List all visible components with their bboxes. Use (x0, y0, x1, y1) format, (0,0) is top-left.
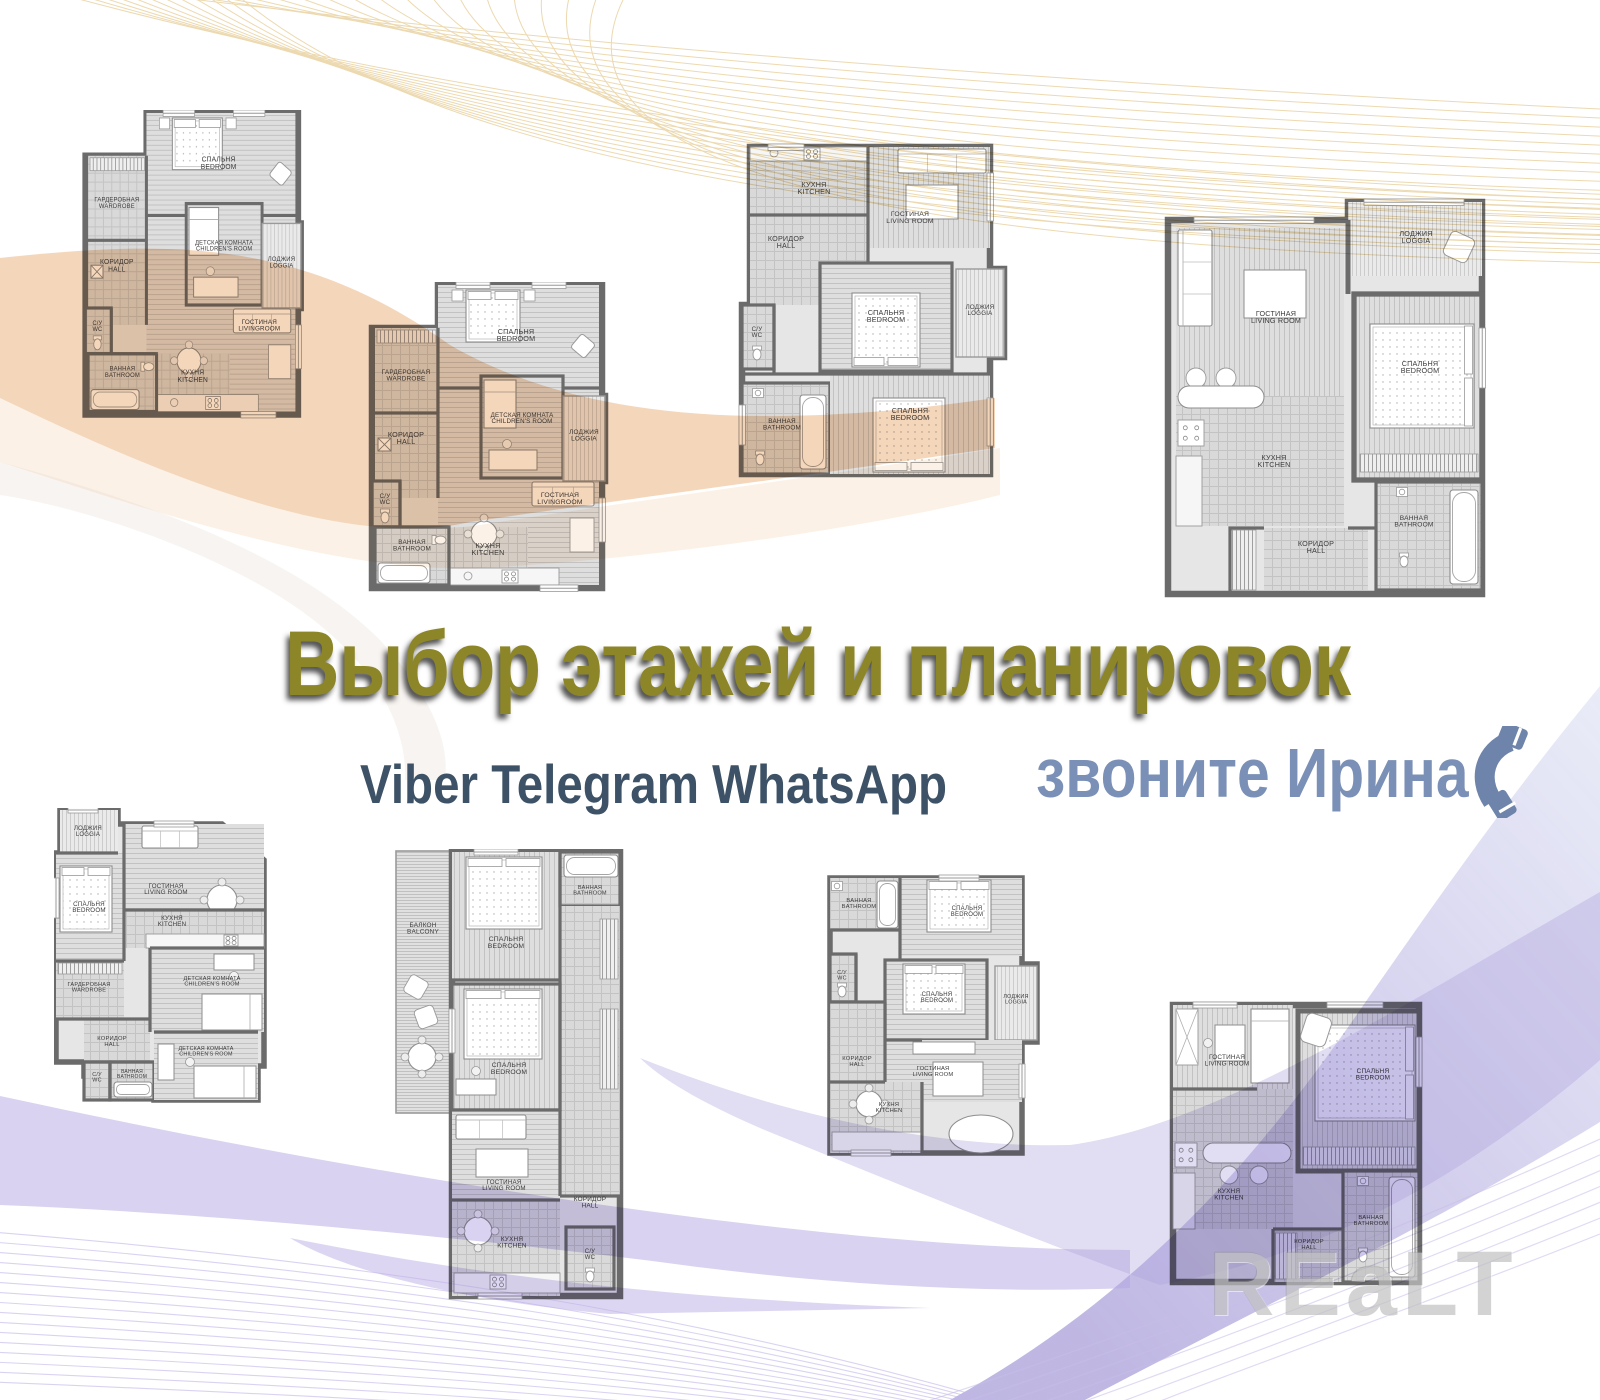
svg-text:СПАЛЬНЯBEDROOM: СПАЛЬНЯBEDROOM (1401, 359, 1440, 375)
svg-text:С/УWC: С/УWC (837, 970, 847, 981)
svg-text:ВАННАЯBATHROOM: ВАННАЯBATHROOM (105, 366, 140, 380)
svg-text:КУХНЯKITCHEN: КУХНЯKITCHEN (1214, 1188, 1244, 1201)
svg-text:КУХНЯKITCHEN: КУХНЯKITCHEN (177, 369, 207, 383)
svg-text:ГАРДЕРОБНАЯWARDROBE: ГАРДЕРОБНАЯWARDROBE (94, 196, 139, 210)
svg-text:СПАЛЬНЯBEDROOM: СПАЛЬНЯBEDROOM (497, 327, 536, 343)
svg-text:ДЕТСКАЯ КОМНАТАCHILDREN'S ROOM: ДЕТСКАЯ КОМНАТАCHILDREN'S ROOM (183, 976, 240, 988)
svg-text:КУХНЯKITCHEN: КУХНЯKITCHEN (158, 915, 187, 928)
svg-text:ЛОДЖИЯLOGGIA: ЛОДЖИЯLOGGIA (1399, 229, 1432, 245)
svg-text:КУХНЯKITCHEN: КУХНЯKITCHEN (798, 180, 831, 196)
svg-text:ЛОДЖИЯLOGGIA: ЛОДЖИЯLOGGIA (966, 304, 995, 317)
svg-text:ВАННАЯBATHROOM: ВАННАЯBATHROOM (1354, 1215, 1389, 1227)
svg-text:ГОСТИНАЯLIVING ROOM: ГОСТИНАЯLIVING ROOM (482, 1179, 525, 1192)
svg-text:ДЕТСКАЯ КОМНАТАCHILDREN'S ROOM: ДЕТСКАЯ КОМНАТАCHILDREN'S ROOM (178, 1046, 233, 1057)
svg-text:ДЕТСКАЯ КОМНАТАCHILDREN'S ROOM: ДЕТСКАЯ КОМНАТАCHILDREN'S ROOM (195, 240, 253, 252)
svg-text:СПАЛЬНЯBEDROOM: СПАЛЬНЯBEDROOM (891, 406, 930, 422)
svg-text:ВАННАЯBATHROOM: ВАННАЯBATHROOM (763, 418, 801, 431)
svg-text:ВАННАЯBATHROOM: ВАННАЯBATHROOM (393, 539, 431, 552)
svg-text:ЛОДЖИЯLOGGIA: ЛОДЖИЯLOGGIA (1003, 994, 1028, 1005)
svg-text:ГОСТИНАЯLIVING ROOM: ГОСТИНАЯLIVING ROOM (1205, 1054, 1250, 1067)
svg-text:ГАРДЕРОБНАЯWARDROBE: ГАРДЕРОБНАЯWARDROBE (68, 982, 111, 994)
svg-text:ЛОДЖИЯLOGGIA: ЛОДЖИЯLOGGIA (268, 256, 295, 270)
svg-text:ГОСТИНАЯLIVING ROOM: ГОСТИНАЯLIVING ROOM (886, 211, 934, 225)
svg-text:ЛОДЖИЯLOGGIA: ЛОДЖИЯLOGGIA (74, 826, 102, 838)
svg-text:ГОСТИНАЯLIVINGROOM: ГОСТИНАЯLIVINGROOM (537, 492, 583, 506)
svg-text:ВАННАЯBATHROOM: ВАННАЯBATHROOM (1394, 515, 1433, 529)
svg-text:СПАЛЬНЯBEDROOM: СПАЛЬНЯBEDROOM (491, 1062, 528, 1076)
svg-text:СПАЛЬНЯBEDROOM: СПАЛЬНЯBEDROOM (72, 901, 105, 914)
svg-text:ГОСТИНАЯLIVING ROOM: ГОСТИНАЯLIVING ROOM (144, 883, 187, 896)
svg-text:ГОСТИНАЯLIVING ROOM: ГОСТИНАЯLIVING ROOM (913, 1066, 954, 1078)
svg-text:ДЕТСКАЯ КОМНАТАCHILDREN'S ROOM: ДЕТСКАЯ КОМНАТАCHILDREN'S ROOM (491, 412, 554, 425)
svg-text:КУХНЯKITCHEN: КУХНЯKITCHEN (1258, 453, 1291, 469)
svg-text:ГОСТИНАЯLIVING ROOM: ГОСТИНАЯLIVING ROOM (1251, 309, 1301, 325)
svg-text:ГАРДЕРОБНАЯWARDROBE: ГАРДЕРОБНАЯWARDROBE (382, 369, 431, 382)
svg-text:ВАННАЯBATHROOM: ВАННАЯBATHROOM (117, 1069, 147, 1080)
svg-text:КУХНЯKITCHEN: КУХНЯKITCHEN (497, 1236, 527, 1249)
svg-text:СПАЛЬНЯBEDROOM: СПАЛЬНЯBEDROOM (921, 992, 953, 1004)
svg-text:С/УWC: С/УWC (92, 321, 102, 333)
svg-text:СПАЛЬНЯBEDROOM: СПАЛЬНЯBEDROOM (201, 157, 237, 171)
svg-text:С/УWC: С/УWC (380, 493, 391, 506)
svg-text:КУХНЯKITCHEN: КУХНЯKITCHEN (472, 541, 505, 557)
svg-text:СПАЛЬНЯBEDROOM: СПАЛЬНЯBEDROOM (1356, 1068, 1390, 1081)
svg-text:БАЛКОНBALCONY: БАЛКОНBALCONY (407, 922, 439, 935)
svg-text:СПАЛЬНЯBEDROOM: СПАЛЬНЯBEDROOM (951, 906, 983, 918)
svg-text:ЛОДЖИЯLOGGIA: ЛОДЖИЯLOGGIA (569, 429, 599, 442)
svg-text:КУХНЯKITCHEN: КУХНЯKITCHEN (876, 1102, 903, 1114)
svg-text:ВАННАЯBATHROOM: ВАННАЯBATHROOM (842, 898, 877, 910)
svg-text:СПАЛЬНЯBEDROOM: СПАЛЬНЯBEDROOM (488, 936, 525, 950)
svg-text:ВАННАЯBATHROOM: ВАННАЯBATHROOM (573, 885, 607, 897)
svg-text:СПАЛЬНЯBEDROOM: СПАЛЬНЯBEDROOM (867, 308, 906, 324)
svg-text:С/УWC: С/УWC (92, 1072, 102, 1083)
svg-text:С/УWC: С/УWC (752, 326, 763, 339)
svg-text:ГОСТИНАЯLIVINGROOM: ГОСТИНАЯLIVINGROOM (238, 319, 280, 333)
svg-text:С/УWC: С/УWC (585, 1249, 596, 1261)
